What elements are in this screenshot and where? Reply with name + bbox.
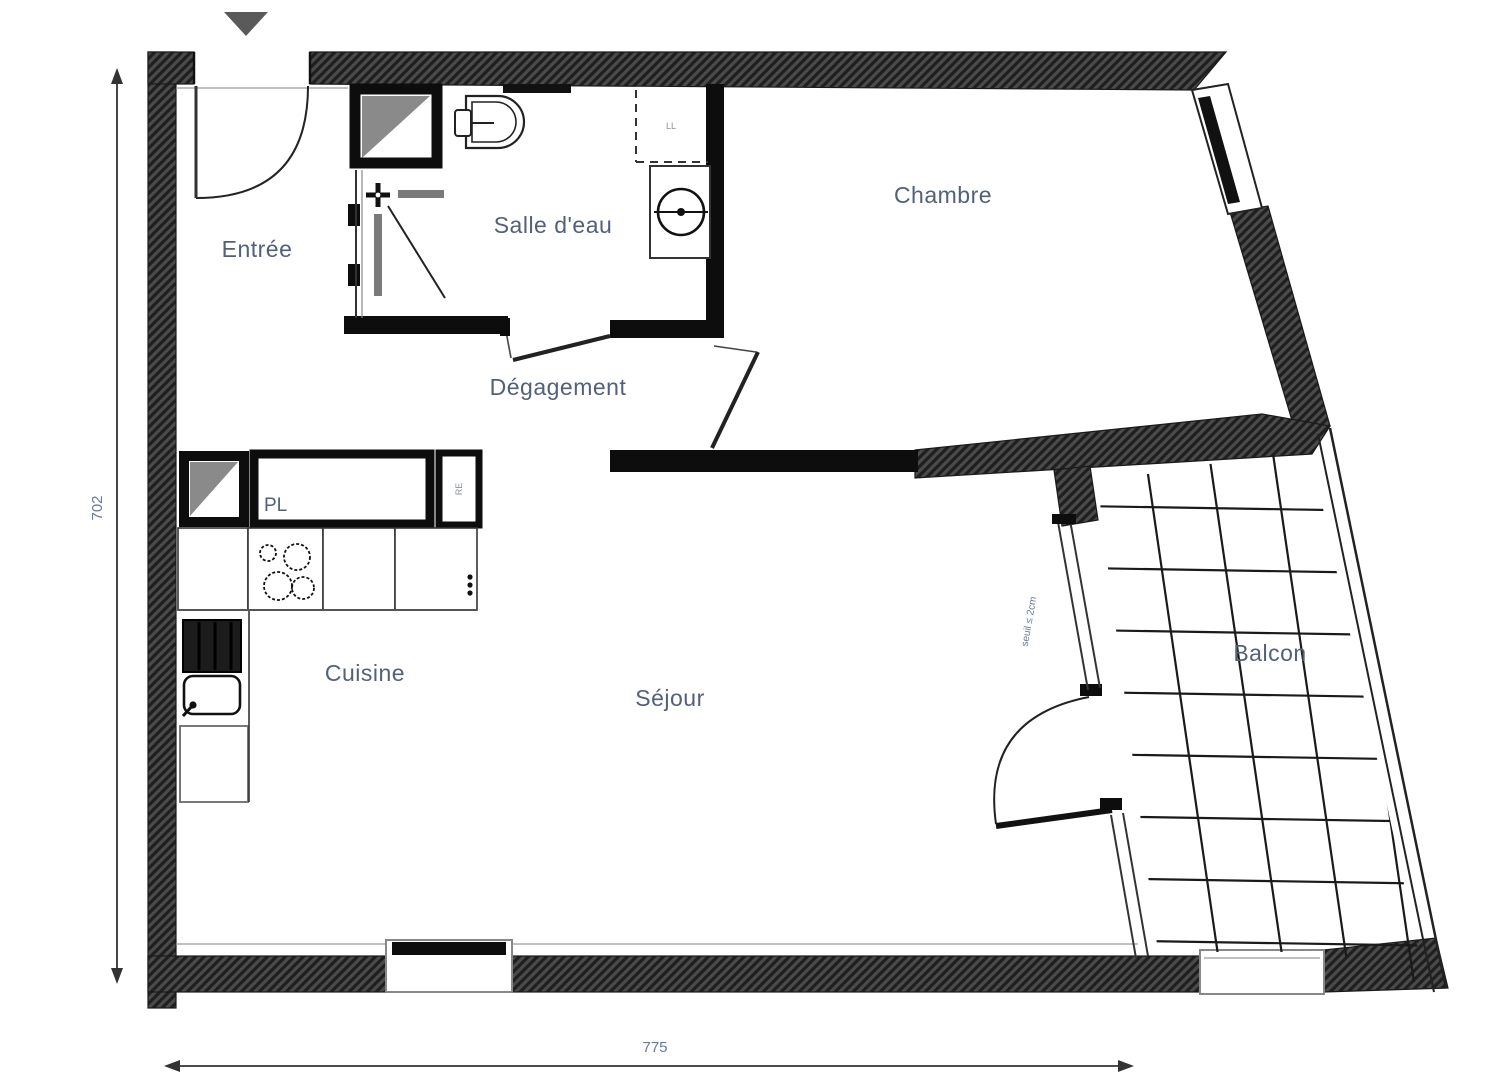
kitchen-cabinet [180, 726, 248, 802]
label-sejour: Séjour [635, 685, 704, 711]
dimension-width-label: 775 [642, 1039, 667, 1056]
label-washing-machine: LL [666, 121, 676, 131]
floor-plan: 702 775 Entrée Salle d'eau Chambre Dégag… [0, 0, 1500, 1086]
water-heater [650, 166, 710, 258]
bay-window-lower [1111, 813, 1148, 958]
label-balcon: Balcon [1233, 640, 1306, 666]
shower-symbol [366, 183, 445, 298]
balcony-tile-grid [1079, 440, 1450, 1010]
label-salle-deau: Salle d'eau [494, 212, 613, 238]
technical-duct-kitchen [184, 456, 244, 522]
label-fridge: RE [454, 483, 464, 496]
bay-window-upper [1052, 514, 1100, 690]
balcony [1079, 428, 1450, 1010]
entry-door [196, 86, 308, 198]
technical-duct-bathroom [355, 89, 437, 163]
balcony-door [994, 684, 1122, 826]
room-labels: Entrée Salle d'eau Chambre Dégagement Cu… [222, 121, 1307, 711]
dimension-height-label: 702 [89, 495, 106, 520]
balcony-railing [1318, 428, 1446, 992]
wall-shelf [503, 84, 571, 93]
dimension-horizontal: 775 [164, 1039, 1134, 1072]
label-chambre: Chambre [894, 182, 992, 208]
dimension-vertical: 702 [89, 68, 123, 984]
bedroom-window [1192, 84, 1262, 214]
sink [183, 676, 240, 716]
entrance-arrow [224, 12, 268, 36]
partition-walls [194, 52, 918, 472]
washbasin [455, 96, 524, 148]
label-placard: PL [264, 495, 287, 516]
kitchen-counter [178, 528, 477, 610]
kitchen-appliance [183, 620, 241, 672]
label-threshold: seuil ≤ 2cm [1020, 596, 1040, 648]
bedroom-door [712, 346, 758, 448]
balcony-window [1200, 950, 1324, 994]
label-cuisine: Cuisine [325, 660, 405, 686]
label-entree: Entrée [222, 236, 293, 262]
living-room-window [386, 940, 512, 992]
bathroom-door [500, 318, 610, 360]
handle-dots [467, 574, 472, 595]
label-degagement: Dégagement [490, 374, 627, 400]
